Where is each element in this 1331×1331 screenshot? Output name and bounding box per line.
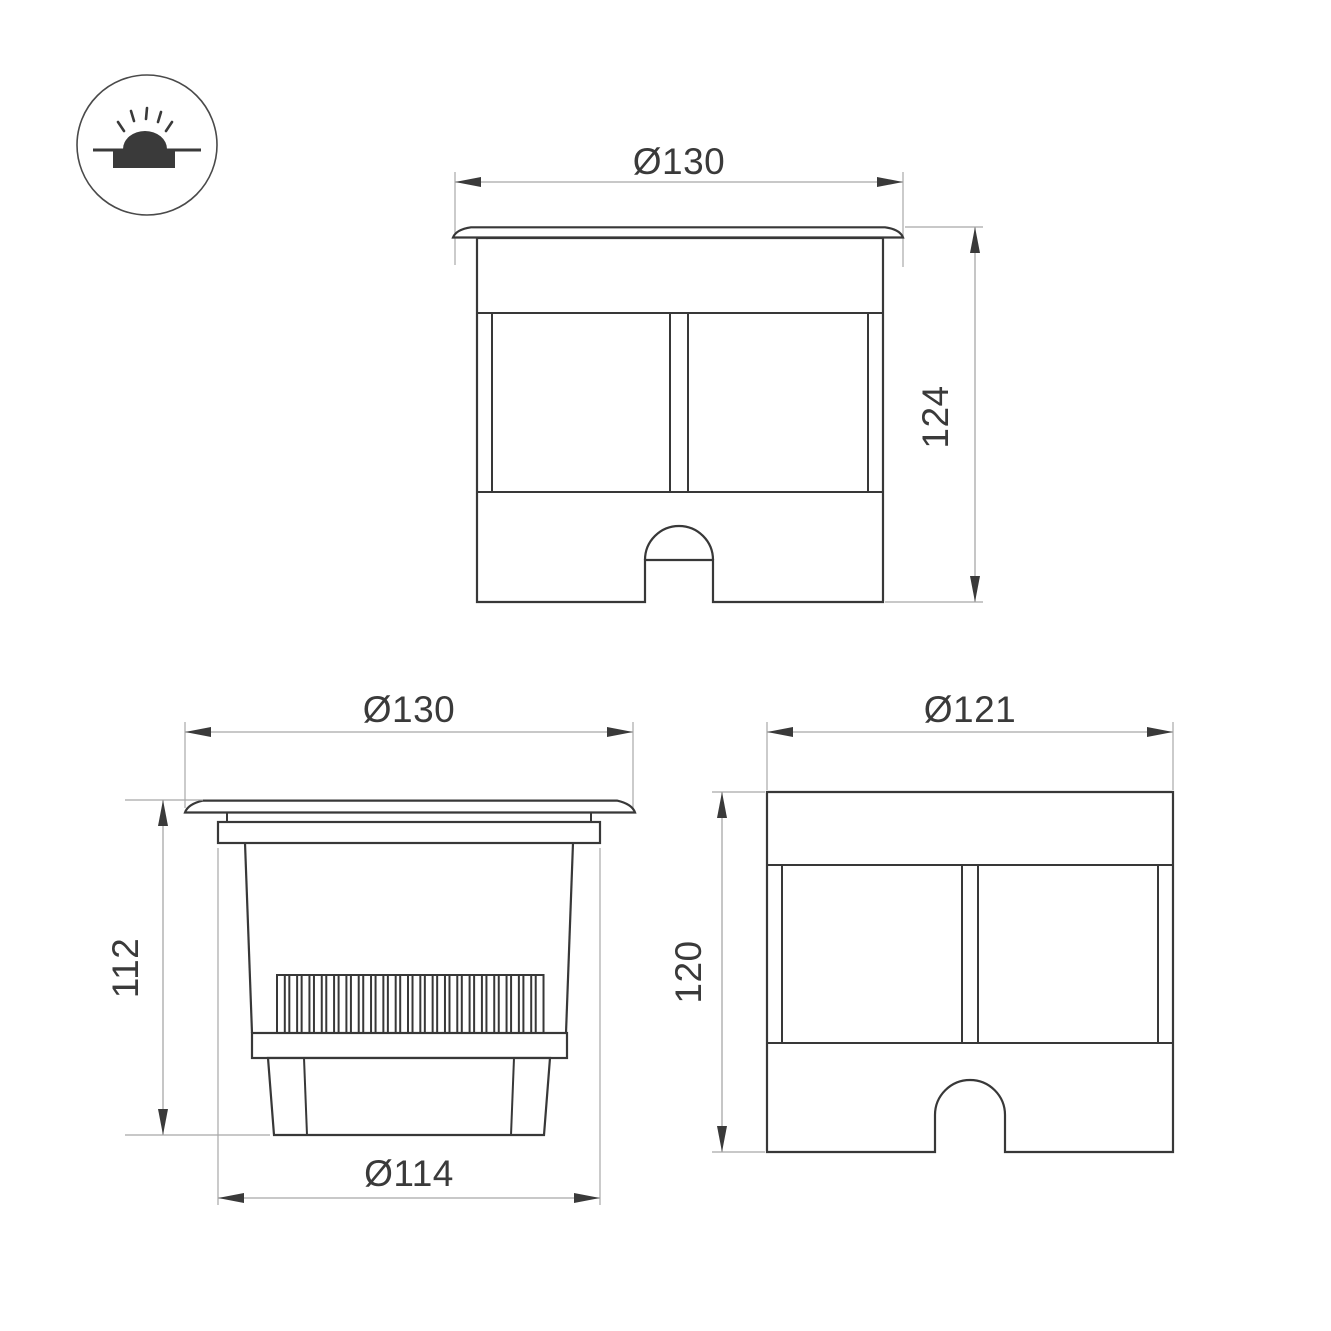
section-height-dim-label: 112 xyxy=(105,938,146,999)
heatsink-fin xyxy=(388,975,396,1033)
heatsink-fin xyxy=(511,975,519,1033)
heatsink-fin xyxy=(302,975,310,1033)
technical-drawing-canvas: Ø130 124 Ø130 xyxy=(0,0,1331,1331)
rear-view: Ø121 120 xyxy=(668,689,1173,1152)
heatsink-fin xyxy=(413,975,421,1033)
heatsink-fin xyxy=(499,975,507,1033)
rear-height-dim-label: 120 xyxy=(668,940,709,1003)
heatsink-fin xyxy=(486,975,494,1033)
rear-body-outline xyxy=(767,792,1173,1152)
heatsink-fin xyxy=(339,975,347,1033)
front-height-dim-label: 124 xyxy=(915,385,956,448)
heatsink-fin xyxy=(449,975,457,1033)
heatsink-fin xyxy=(462,975,470,1033)
front-width-dim-label: Ø130 xyxy=(633,141,726,182)
section-collar xyxy=(218,822,600,843)
heatsink-fin xyxy=(326,975,334,1033)
rear-width-dim-label: Ø121 xyxy=(924,689,1017,730)
front-body-outline xyxy=(477,238,883,602)
section-width-dim-label: Ø130 xyxy=(363,689,456,730)
section-step-lines xyxy=(227,813,591,822)
front-flange xyxy=(453,227,903,237)
heatsink-fin xyxy=(376,975,384,1033)
heatsink-fin xyxy=(363,975,371,1033)
section-view: Ø130 112 xyxy=(105,689,635,1205)
heatsink-fin xyxy=(437,975,445,1033)
heatsink-fins xyxy=(277,975,544,1033)
technical-drawing-page: Ø130 124 Ø130 xyxy=(0,0,1331,1331)
heatsink-fin xyxy=(351,975,359,1033)
heatsink-fin xyxy=(289,975,297,1033)
heatsink-fin xyxy=(536,975,544,1033)
section-plate xyxy=(252,1033,567,1058)
heatsink-fin xyxy=(474,975,482,1033)
heatsink-fin xyxy=(400,975,408,1033)
inground-light-icon xyxy=(77,75,217,215)
section-flange xyxy=(185,801,635,813)
heatsink-fin xyxy=(277,975,285,1033)
icon-recessed-body xyxy=(113,151,175,168)
heatsink-fin xyxy=(523,975,531,1033)
front-view: Ø130 124 xyxy=(453,141,983,602)
heatsink-fin xyxy=(314,975,322,1033)
section-base-dim-label: Ø114 xyxy=(364,1153,454,1194)
heatsink-fin xyxy=(425,975,433,1033)
section-base xyxy=(268,1058,550,1135)
